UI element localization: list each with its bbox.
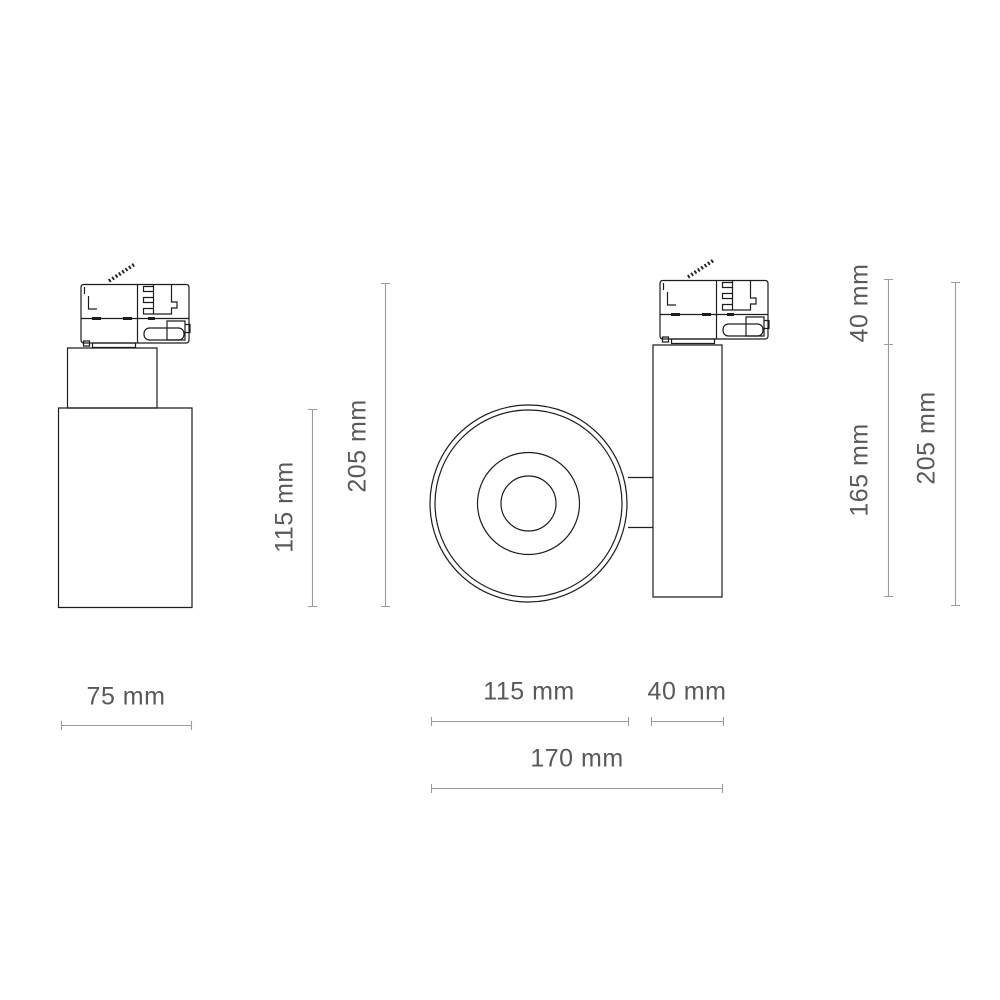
side-view bbox=[628, 260, 769, 597]
lens-led-aperture bbox=[501, 476, 556, 531]
dim-label-total-depth: 170 mm bbox=[530, 747, 623, 772]
dim-label-lens-diameter: 115 mm bbox=[483, 680, 574, 705]
dim-line-body-depth bbox=[651, 717, 724, 726]
dim-label-front-width: 75 mm bbox=[87, 685, 166, 710]
lens-outer-ring bbox=[430, 405, 627, 602]
dim-label-side-body-height: 165 mm bbox=[848, 423, 873, 516]
dim-line-front-width bbox=[61, 721, 192, 730]
track-adapter-side bbox=[660, 260, 769, 344]
dim-line-side-total-height bbox=[951, 282, 960, 606]
dim-label-side-total-height: 205 mm bbox=[915, 391, 940, 484]
mounting-bracket bbox=[628, 478, 653, 528]
dim-label-front-total-height: 205 mm bbox=[346, 399, 371, 492]
front-view bbox=[59, 264, 193, 608]
dimension-drawing: 115 mm 205 mm 75 mm 115 mm 40 mm 170 mm … bbox=[0, 0, 1000, 1000]
lens-front-view bbox=[430, 405, 627, 602]
lens-inner-rim bbox=[435, 410, 622, 597]
dim-label-side-adapter-height: 40 mm bbox=[848, 264, 873, 343]
dim-line-total-depth bbox=[431, 784, 723, 793]
side-view-body bbox=[653, 345, 722, 597]
lens-reflector bbox=[478, 453, 580, 555]
dim-line-lens-diameter bbox=[431, 717, 629, 726]
front-view-body bbox=[59, 408, 193, 608]
dim-line-front-body-height bbox=[308, 409, 317, 607]
track-adapter-front bbox=[81, 264, 190, 348]
dim-line-front-total-height bbox=[381, 283, 390, 607]
dim-label-front-body-height: 115 mm bbox=[273, 461, 298, 552]
front-view-neck bbox=[68, 348, 158, 408]
dim-label-body-depth: 40 mm bbox=[648, 680, 727, 705]
dim-line-side-heights bbox=[884, 279, 893, 597]
dimension-lines bbox=[61, 279, 960, 793]
